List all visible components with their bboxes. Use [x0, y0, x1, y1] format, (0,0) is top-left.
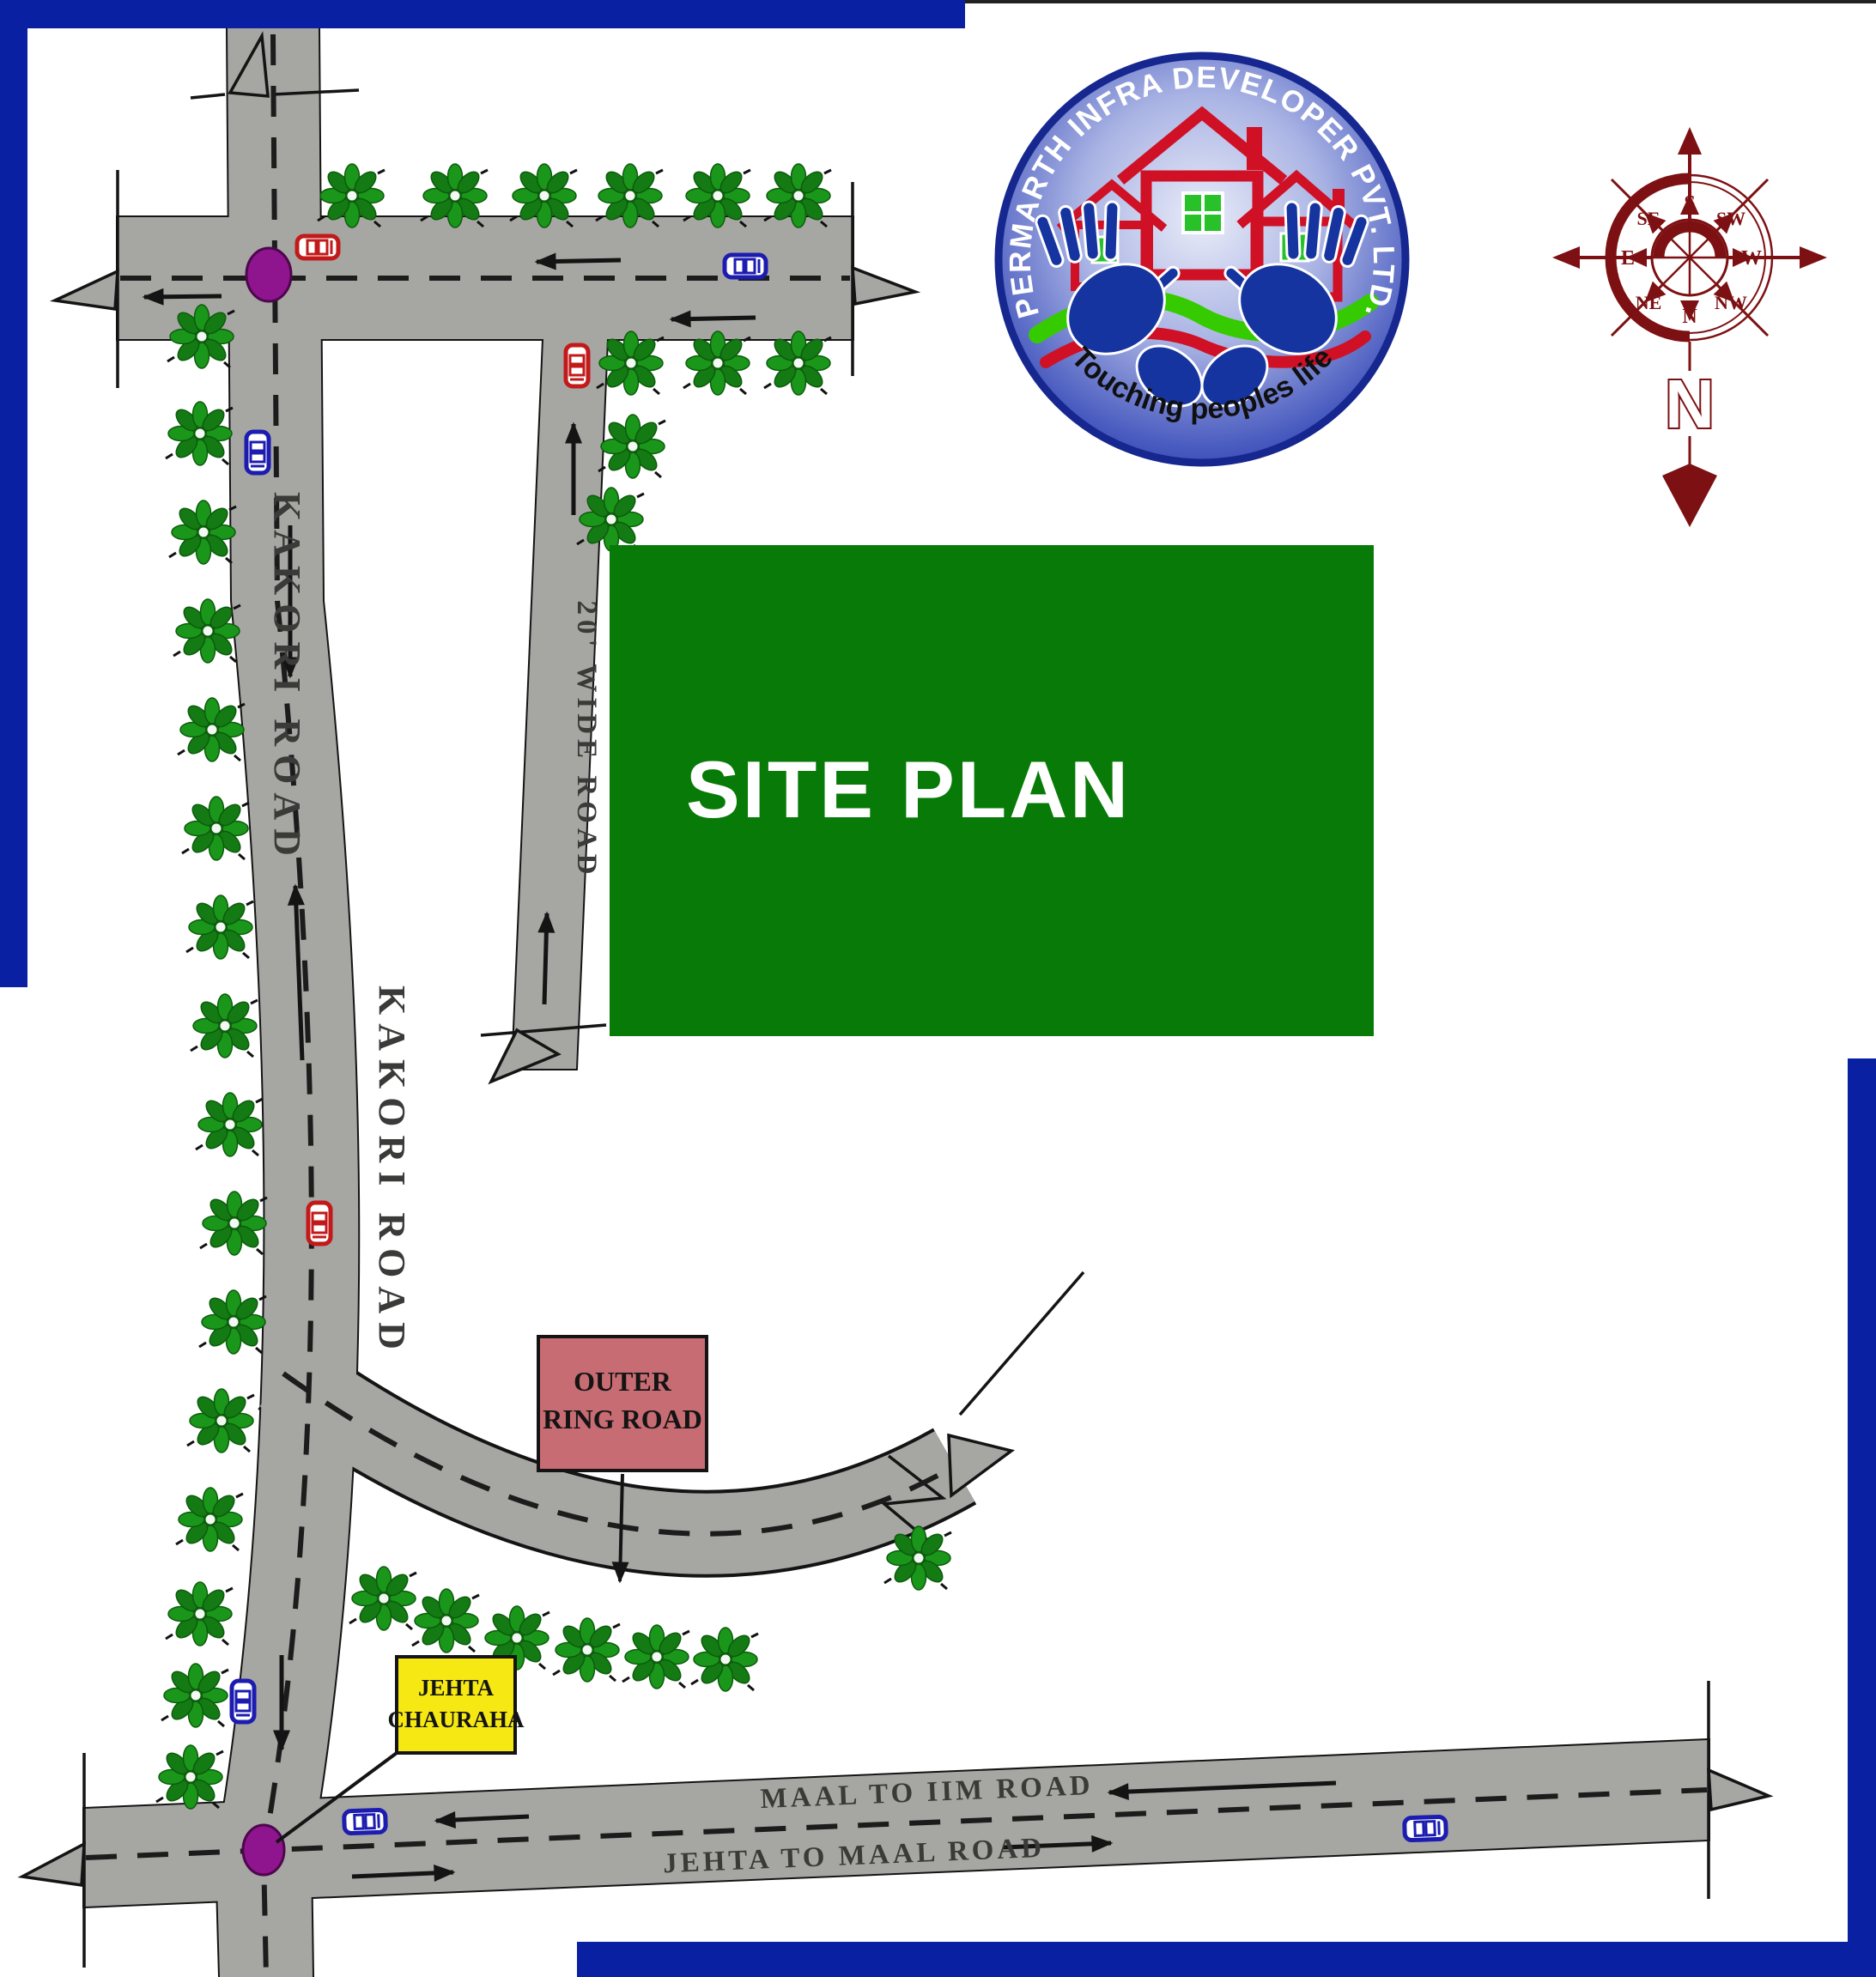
frame-top-bar: [0, 0, 965, 28]
tree-icon: [166, 402, 233, 465]
tree-icon: [196, 1093, 263, 1156]
compass-bottom-left: NE: [1636, 292, 1662, 313]
car-icon-blue: [246, 432, 269, 473]
tree-icon: [156, 1745, 223, 1809]
compass-north-letter: N: [1665, 366, 1715, 442]
tree-icon: [349, 1567, 416, 1630]
compass-top: S: [1684, 192, 1695, 215]
tree-icon: [169, 500, 236, 564]
intersection-dot-bottom: [243, 1825, 284, 1875]
compass-rose: S SW W NW N NE E SE N: [1552, 127, 1827, 527]
tree-icon: [412, 1589, 479, 1653]
tree-icon: [161, 1664, 228, 1727]
car-icon-blue: [232, 1681, 254, 1722]
tree-icon: [186, 895, 253, 959]
compass-bottom-right: NW: [1715, 292, 1747, 313]
car-icon-red: [297, 236, 338, 258]
tree-icon: [683, 331, 750, 395]
tree-icon: [173, 599, 240, 663]
jehta-chauraha-line2: CHAURAHA: [388, 1707, 525, 1732]
outer-ring-road-line2: RING ROAD: [543, 1404, 702, 1434]
tree-icon: [553, 1618, 620, 1682]
tree-icon: [191, 994, 258, 1058]
intersection-dot-top: [246, 248, 291, 301]
car-icon-red: [566, 345, 588, 386]
car-icon-blue: [344, 1810, 386, 1834]
company-logo: PERMARTH INFRA DEVELOPER PVT. LTD. Touch…: [999, 56, 1405, 463]
site-plan-map: KAKORI ROAD KAKORI ROAD 20' WIDE ROAD MA…: [0, 0, 1876, 1977]
car-icon-red: [308, 1203, 331, 1244]
tree-icon: [199, 1290, 266, 1354]
tree-icon: [200, 1192, 267, 1255]
wide-road-label: 20' WIDE ROAD: [571, 601, 602, 880]
compass-top-right: SW: [1716, 208, 1745, 229]
site-plan-title: SITE PLAN: [686, 744, 1131, 834]
bottom-road-surface: [84, 1740, 1709, 1907]
jehta-chauraha-line1: JEHTA: [418, 1675, 495, 1701]
compass-bottom: N: [1682, 306, 1697, 328]
tree-icon: [176, 1488, 243, 1551]
car-icon-blue: [1405, 1816, 1447, 1841]
frame-bottom-bar: [577, 1942, 1876, 1977]
tree-icon: [182, 797, 249, 860]
kakori-road-lower-label: KAKORI ROAD: [371, 985, 413, 1358]
tree-icon: [622, 1625, 689, 1689]
site-plan-page: KAKORI ROAD KAKORI ROAD 20' WIDE ROAD MA…: [0, 0, 1876, 1977]
compass-left: E: [1621, 247, 1635, 270]
compass-top-left: SE: [1637, 208, 1660, 229]
tree-icon: [166, 1582, 233, 1646]
kakori-road-upper-label: KAKORI ROAD: [266, 492, 308, 864]
compass-north-arrow: [1662, 464, 1717, 527]
tree-icon: [187, 1389, 254, 1452]
tree-icon: [691, 1628, 758, 1691]
site-plan-banner: SITE PLAN: [610, 545, 1374, 1036]
tree-icon: [764, 331, 831, 395]
frame-left-strip: [0, 0, 27, 987]
tree-icon: [178, 698, 245, 761]
outer-ring-road-line1: OUTER: [574, 1366, 672, 1397]
car-icon-blue: [725, 255, 766, 277]
tree-icon: [598, 415, 665, 478]
frame-right-strip: [1848, 1058, 1876, 1977]
compass-right: W: [1741, 247, 1762, 270]
